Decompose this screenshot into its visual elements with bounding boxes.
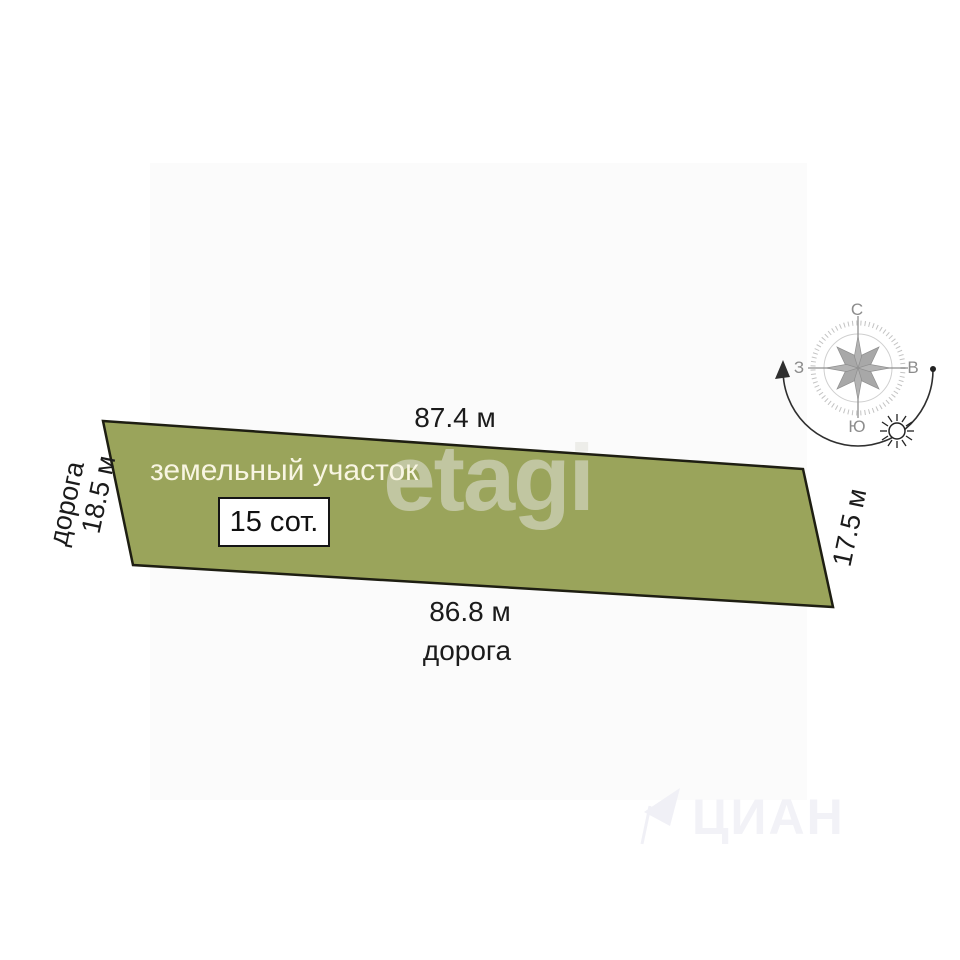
sun-path-start-dot <box>930 366 936 372</box>
road-label-bottom: дорога <box>387 636 547 666</box>
land-plot-plan: etagi 87.4 м земельный участок 15 сот. 8… <box>0 0 960 960</box>
area-badge: 15 сот. <box>218 497 330 547</box>
plan-drawing <box>0 0 960 960</box>
plot-shape <box>103 421 833 607</box>
compass-south-label: Ю <box>845 417 869 437</box>
compass-east-label: В <box>901 358 925 378</box>
plot-title-label: земельный участок <box>150 455 400 487</box>
dimension-label-top: 87.4 м <box>375 403 535 433</box>
area-value: 15 сот. <box>230 506 319 539</box>
dimension-label-bottom: 86.8 м <box>390 597 550 627</box>
sun-icon <box>880 414 914 448</box>
compass-north-label: С <box>845 300 869 320</box>
compass-rose-icon <box>808 316 908 418</box>
compass-west-label: З <box>787 358 811 378</box>
